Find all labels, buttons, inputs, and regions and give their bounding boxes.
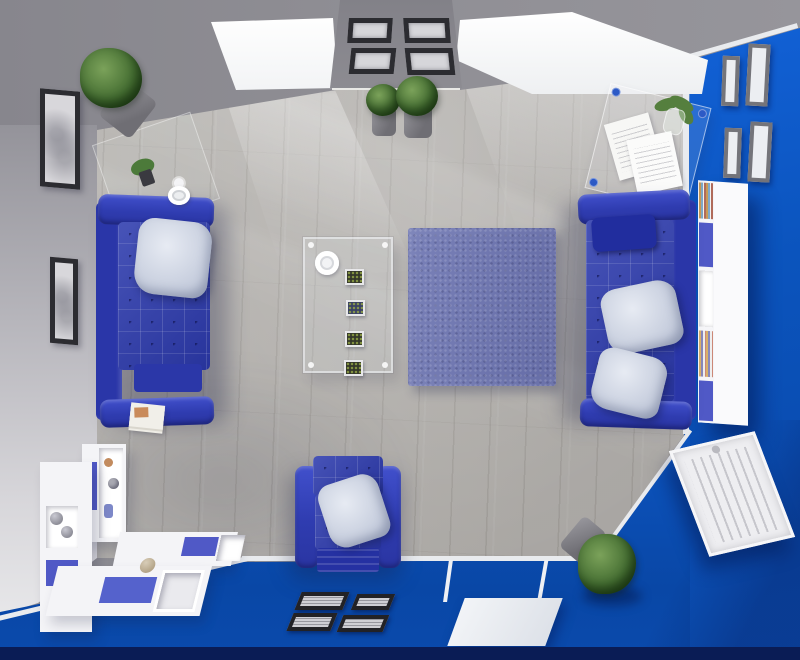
gallery-column xyxy=(330,0,462,92)
door xyxy=(447,598,562,646)
console-plant-pot xyxy=(138,169,155,187)
bookcase-blue-door-1 xyxy=(699,222,713,267)
table-fitting xyxy=(308,362,314,368)
bookcase-empty-cubby xyxy=(699,270,713,327)
gallery-frame-4 xyxy=(405,48,456,75)
shelf-open-box xyxy=(153,570,205,612)
coffee-table xyxy=(303,237,393,373)
shelf-decor-sphere xyxy=(61,526,73,538)
plant-tray-1 xyxy=(345,269,364,285)
bottom-wall-frame-3 xyxy=(286,613,337,631)
gallery-frame-3 xyxy=(349,48,397,74)
table-fitting xyxy=(382,242,388,248)
room-render xyxy=(0,0,800,660)
shelf-cubby xyxy=(46,506,78,548)
sofa-pillow xyxy=(132,216,214,299)
left-wall-frame-2 xyxy=(50,257,78,345)
plant-tray-2 xyxy=(346,300,365,316)
bookcase xyxy=(698,180,748,425)
table-cup xyxy=(315,251,339,275)
desk-leg xyxy=(697,108,708,119)
plant-tray-3 xyxy=(345,331,364,347)
shelf-blue-tile xyxy=(99,577,157,603)
left-wall-frame-1 xyxy=(40,88,80,189)
right-wall-frame-3 xyxy=(723,128,742,179)
table-fitting xyxy=(382,362,388,368)
bookcase-books-bottom xyxy=(699,330,713,377)
desk-leg xyxy=(611,87,622,98)
sofa-front-cushion xyxy=(134,364,202,392)
shelf-cubby xyxy=(99,448,123,538)
bottom-wall-edge xyxy=(0,647,800,660)
gallery-frame-2 xyxy=(403,18,451,43)
armchair xyxy=(295,456,401,582)
desk-vase xyxy=(661,107,687,137)
blue-rug xyxy=(408,228,556,386)
bookcase-blue-door-2 xyxy=(699,380,713,421)
armchair-front xyxy=(317,548,379,572)
corner-plant-foliage xyxy=(80,48,142,108)
bookcase-books-top xyxy=(699,182,713,219)
right-wall-frame-2 xyxy=(745,43,770,106)
right-wall-frame-4 xyxy=(747,121,772,182)
plant-tray-4 xyxy=(344,360,363,376)
shelf-decor-sphere xyxy=(50,512,63,525)
right-sofa xyxy=(572,192,698,430)
table-fitting xyxy=(308,242,314,248)
corner-shelf-unit xyxy=(34,440,246,636)
shelf-decor-vase xyxy=(104,504,113,518)
left-sofa xyxy=(96,196,218,428)
shelf-back-arm xyxy=(113,532,238,566)
desk-paper-2 xyxy=(626,131,683,195)
floor-plant-foliage-1 xyxy=(366,84,400,116)
floor-cup xyxy=(168,186,190,205)
shelf-front-arm xyxy=(46,566,212,616)
gallery-frame-1 xyxy=(347,18,393,43)
bottom-wall-frame-4 xyxy=(337,615,390,632)
shelf-decor xyxy=(104,458,113,467)
bookcase-shelf-column xyxy=(698,180,714,423)
bottom-wall-frame-2 xyxy=(351,594,395,610)
shelf-blue-tile xyxy=(181,537,219,556)
radiator-slats xyxy=(684,446,780,544)
bottom-wall-frame-1 xyxy=(294,592,349,610)
floor-plant-foliage-2 xyxy=(396,76,438,116)
magazine-stack xyxy=(129,402,165,429)
shelf-decor-sphere xyxy=(108,478,119,489)
shelf-open-box xyxy=(216,535,246,561)
sofa-headrest-cushion xyxy=(591,214,657,252)
right-wall-frame-1 xyxy=(721,56,740,107)
desk-leg xyxy=(588,177,599,188)
